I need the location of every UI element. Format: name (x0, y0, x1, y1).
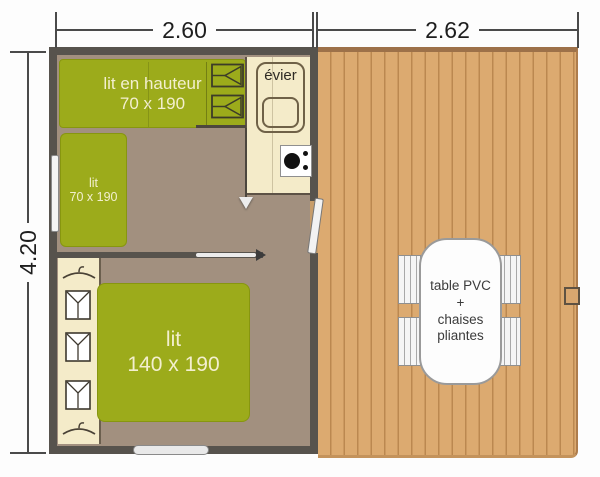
bunk-ladder-icon (211, 94, 244, 119)
dimension-tick (10, 452, 46, 454)
table-label-line2: + (457, 295, 465, 312)
dimension-cabin-width-value: 2.60 (153, 19, 216, 42)
wardrobe (58, 258, 101, 444)
folding-chair-icon (398, 255, 421, 304)
shirt-icon (65, 332, 91, 362)
kitchen-counter: évier (245, 57, 310, 195)
table-label-line4: pliantes (437, 328, 484, 345)
folding-chair-icon (398, 317, 421, 366)
dimension-terrace-width-value: 2.62 (416, 19, 479, 42)
slide-right-arrow-icon (256, 249, 266, 261)
sink-basin-icon (262, 97, 299, 128)
dimension-line (27, 282, 29, 452)
window-left-wall (51, 155, 59, 232)
dimension-tick (577, 12, 579, 48)
shirt-icon (65, 380, 91, 410)
cabin-walls: lit en hauteur 70 x 190 (49, 47, 318, 454)
bunk-ladder-divider (206, 62, 207, 127)
bunk-partition-wall (196, 125, 246, 128)
bunk-bed-label-line2: 70 x 190 (78, 94, 228, 114)
bunk-ladder-icon (211, 63, 244, 88)
single-bed: lit 70 x 190 (60, 133, 127, 247)
window-bottom-wall (133, 445, 209, 455)
dimension-line (27, 53, 29, 223)
sink-label: évier (258, 67, 303, 84)
double-bed-label-line2: 140 x 190 (127, 353, 219, 377)
bunk-bed-divider (148, 62, 149, 127)
bunk-bed: lit en hauteur 70 x 190 (59, 59, 246, 128)
table-label-line3: chaises (438, 312, 484, 329)
bunk-bed-label: lit en hauteur 70 x 190 (78, 74, 228, 113)
dimension-line (216, 29, 312, 31)
stove-burner-icon (284, 153, 300, 169)
single-bed-label-line1: lit (89, 176, 98, 190)
dimension-line (57, 29, 153, 31)
dimension-height: 4.20 (10, 51, 46, 454)
double-bed-label-line1: lit (166, 328, 181, 352)
stove-knob-icon (303, 165, 308, 170)
dimension-tick (312, 12, 314, 48)
double-bed: lit 140 x 190 (97, 283, 250, 422)
hanger-icon (61, 264, 97, 282)
bunk-bed-label-line1: lit en hauteur (78, 74, 228, 94)
sliding-door (196, 253, 256, 257)
sliding-panel-track (245, 128, 247, 198)
floor-plan: 2.60 2.62 4.20 lit en hauteur 70 x 190 (0, 0, 600, 477)
cabin-floor: lit en hauteur 70 x 190 (57, 55, 310, 446)
dimension-cabin-width: 2.60 (55, 12, 314, 48)
single-bed-label-line2: 70 x 190 (70, 190, 118, 204)
terrace-deck: table PVC + chaises pliantes (318, 47, 578, 458)
hanger-icon (61, 420, 97, 438)
dimension-line (479, 29, 577, 31)
stove-knob-icon (303, 151, 308, 156)
stove-icon (280, 145, 312, 177)
slide-down-arrow-icon (239, 197, 253, 209)
table-label-line1: table PVC (430, 278, 491, 295)
deck-latch-icon (564, 287, 580, 305)
sink-icon: évier (256, 62, 305, 133)
dimension-line (318, 29, 416, 31)
dimension-terrace-width: 2.62 (316, 12, 579, 48)
shirt-icon (65, 290, 91, 320)
pvc-table: table PVC + chaises pliantes (419, 238, 502, 385)
dimension-height-value: 4.20 (17, 230, 40, 275)
